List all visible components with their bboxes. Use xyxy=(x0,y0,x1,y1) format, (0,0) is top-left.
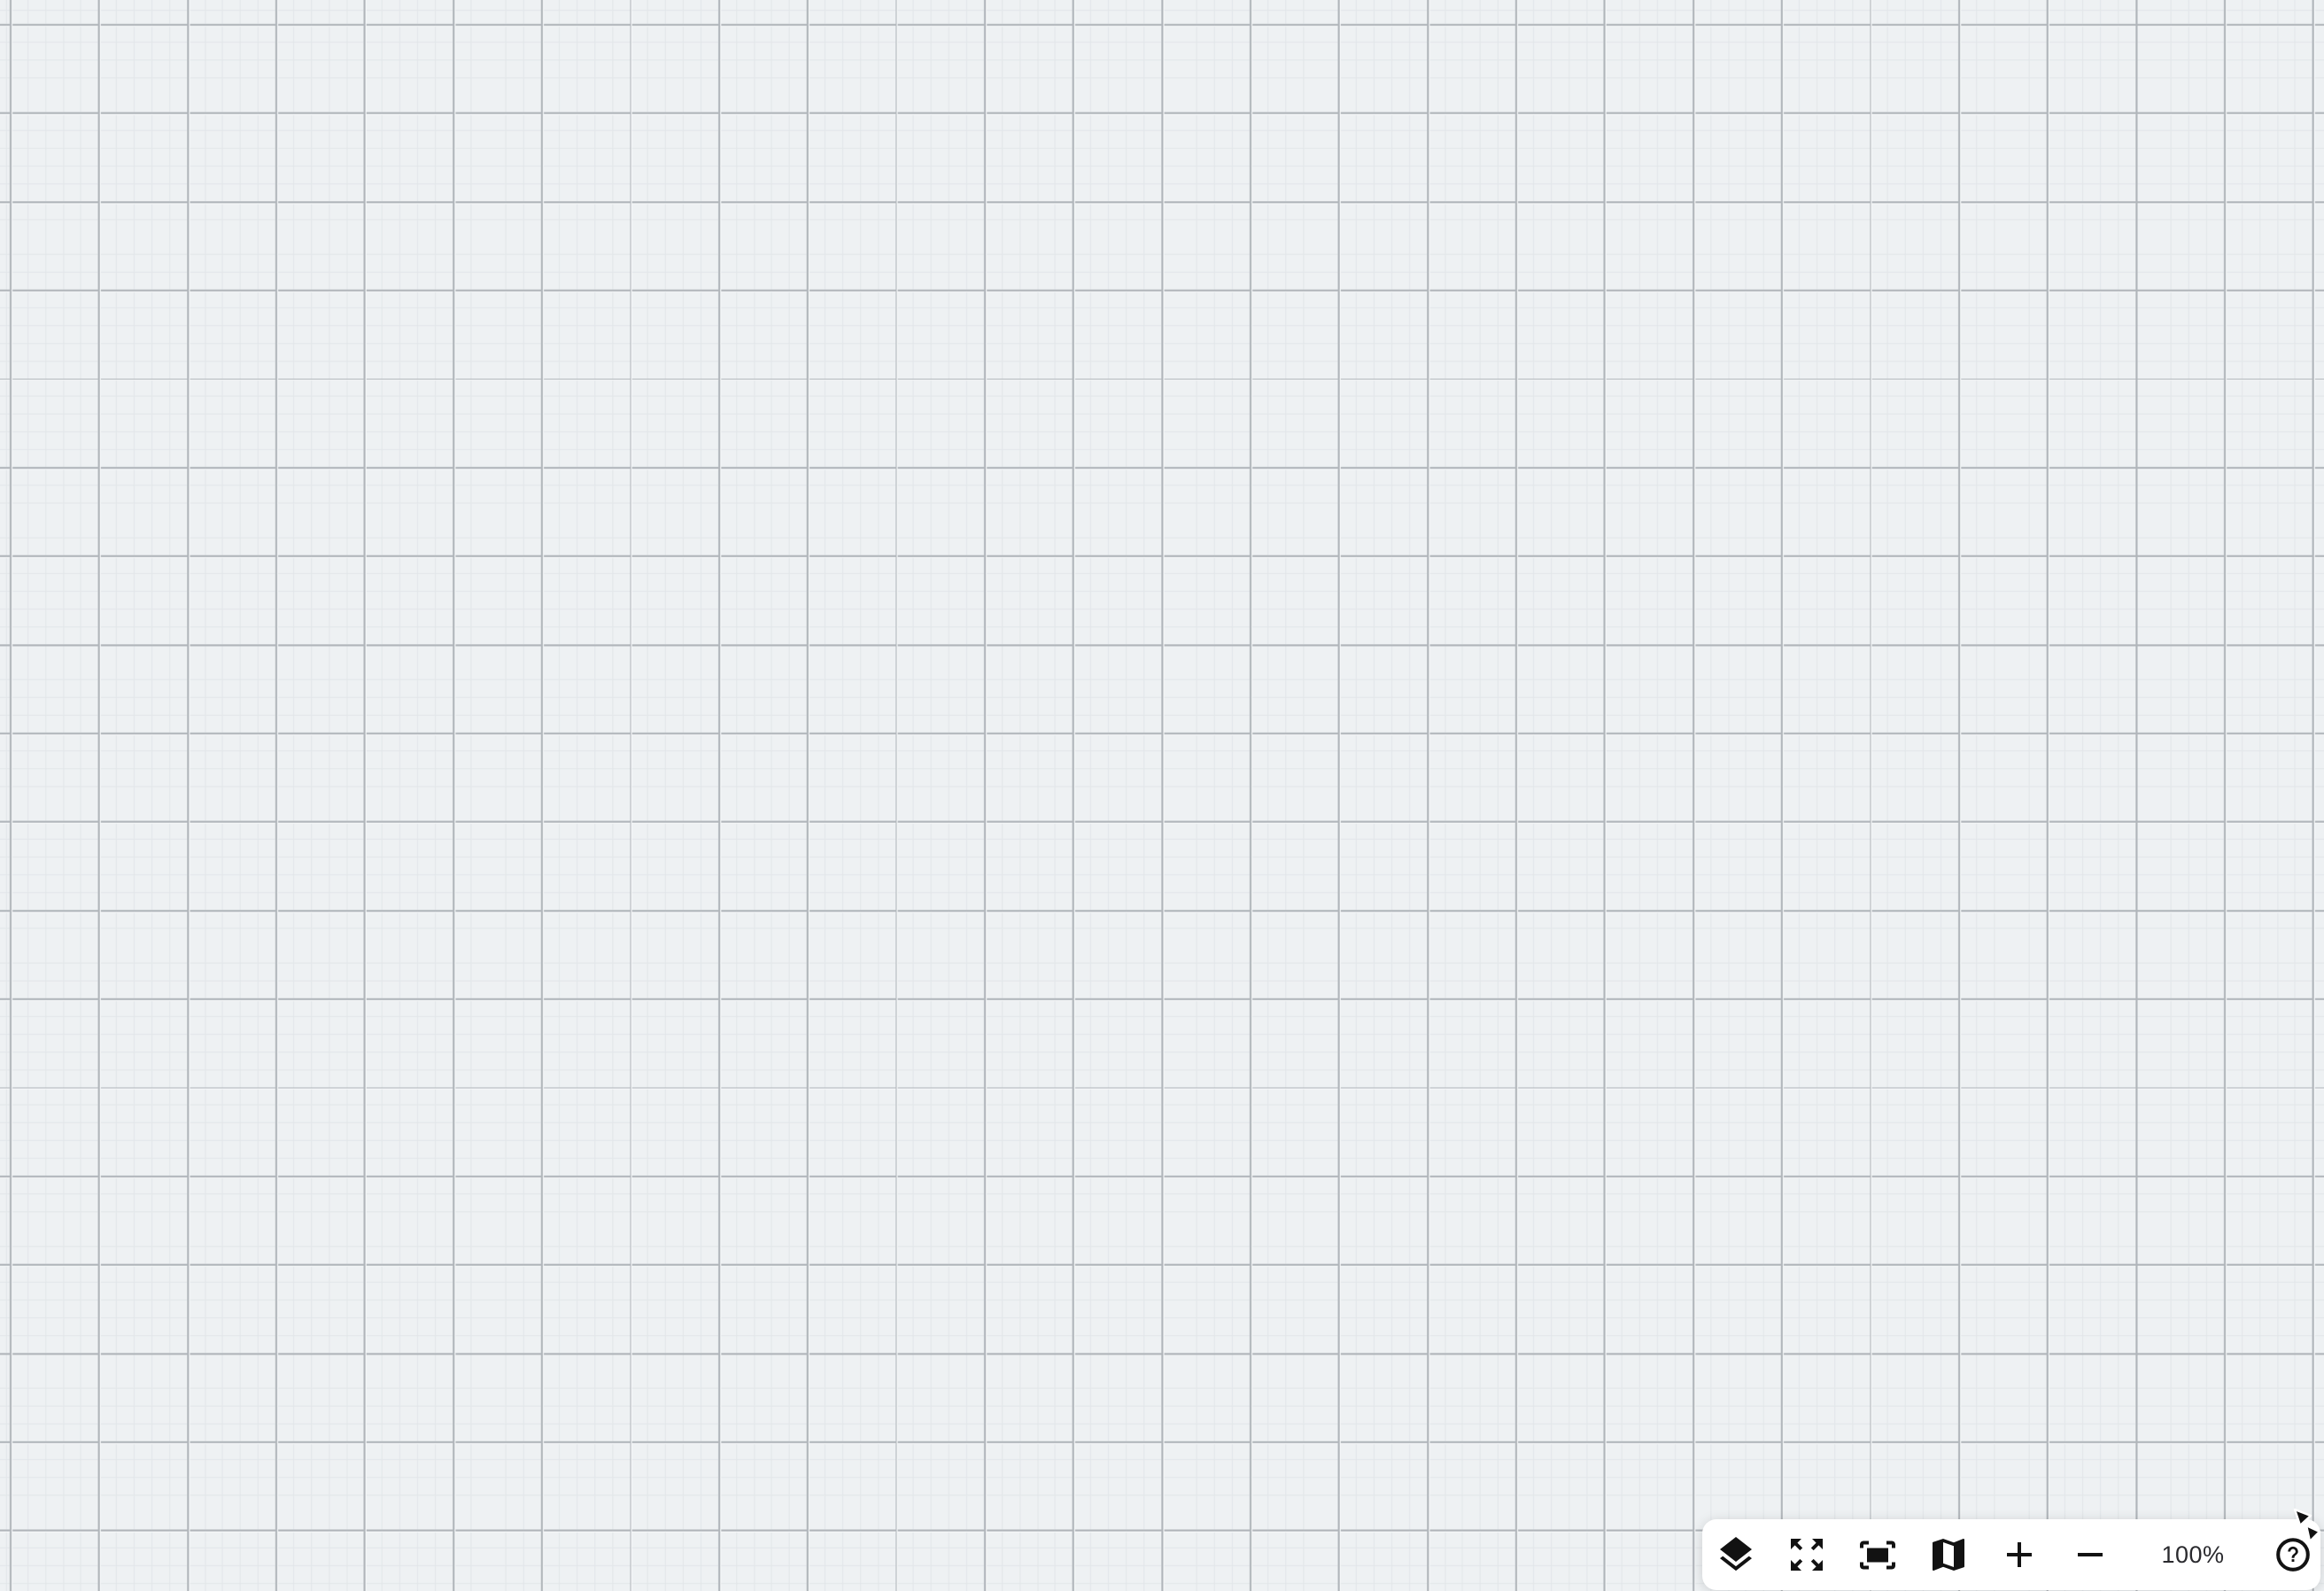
app-viewport: 100% xyxy=(0,0,2324,1591)
map-icon xyxy=(1927,1532,1970,1578)
minus-icon xyxy=(2069,1533,2111,1576)
layers-button[interactable] xyxy=(1715,1519,1757,1590)
minimap-button[interactable] xyxy=(1927,1519,1970,1590)
zoom-toolbar: 100% xyxy=(1702,1519,2320,1590)
zoom-in-button[interactable] xyxy=(1998,1519,2041,1590)
help-button[interactable] xyxy=(2272,1519,2314,1590)
expand-view-button[interactable] xyxy=(1786,1519,1828,1590)
plus-icon xyxy=(1998,1533,2041,1576)
zoom-to-fit-button[interactable] xyxy=(1856,1519,1899,1590)
canvas-grid[interactable] xyxy=(0,0,2324,1591)
zoom-out-button[interactable] xyxy=(2069,1519,2111,1590)
layers-icon xyxy=(1715,1533,1757,1577)
question-circle-icon xyxy=(2274,1536,2312,1573)
expand-arrows-icon xyxy=(1786,1531,1828,1579)
fit-screen-icon xyxy=(1856,1531,1899,1579)
zoom-level-label[interactable]: 100% xyxy=(2140,1541,2246,1569)
